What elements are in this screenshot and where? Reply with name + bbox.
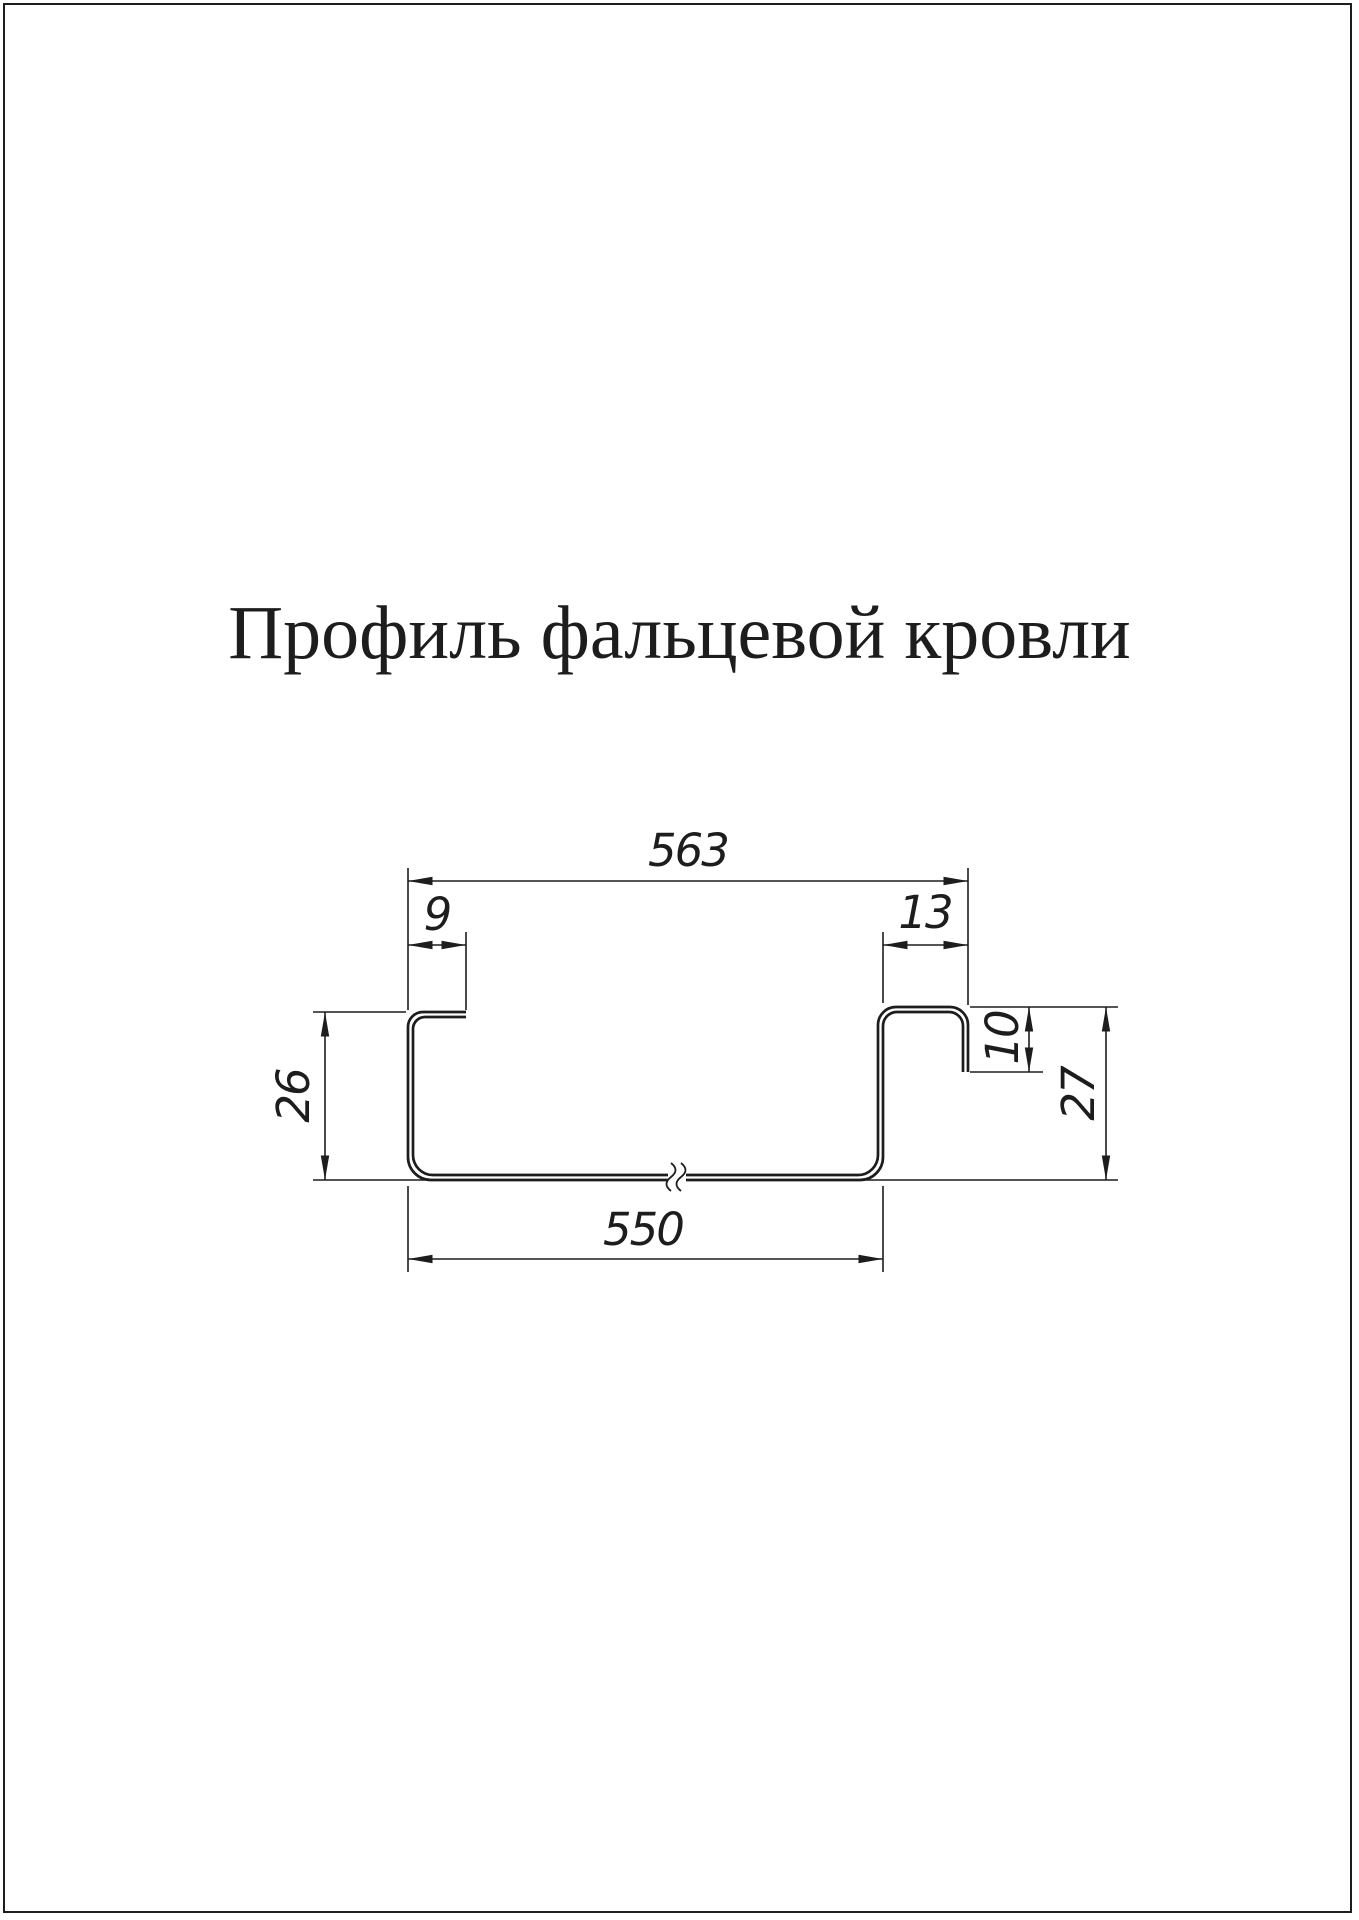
- profile-contour: [408, 1007, 968, 1180]
- drawing-sheet: Профиль фальцевой кровли: [0, 0, 1359, 1920]
- dim-label-bottom-width: 550: [603, 1203, 683, 1256]
- dim-label-right-height: 27: [1052, 1065, 1105, 1121]
- dim-label-left-height: 26: [267, 1069, 320, 1123]
- profile-outer-line: [408, 1012, 963, 1180]
- dim-label-right-hook: 13: [898, 886, 951, 939]
- dim-label-hook-drop: 10: [976, 1011, 1029, 1065]
- dimension-labels: 563 9 13 26 10 27 550: [267, 824, 1105, 1256]
- dim-label-total-width: 563: [648, 824, 728, 877]
- break-symbol: [667, 1163, 687, 1191]
- dim-label-left-lip: 9: [424, 888, 451, 941]
- profile-inner-line: [413, 1007, 968, 1175]
- profile-drawing: 563 9 13 26 10 27 550: [0, 0, 1359, 1920]
